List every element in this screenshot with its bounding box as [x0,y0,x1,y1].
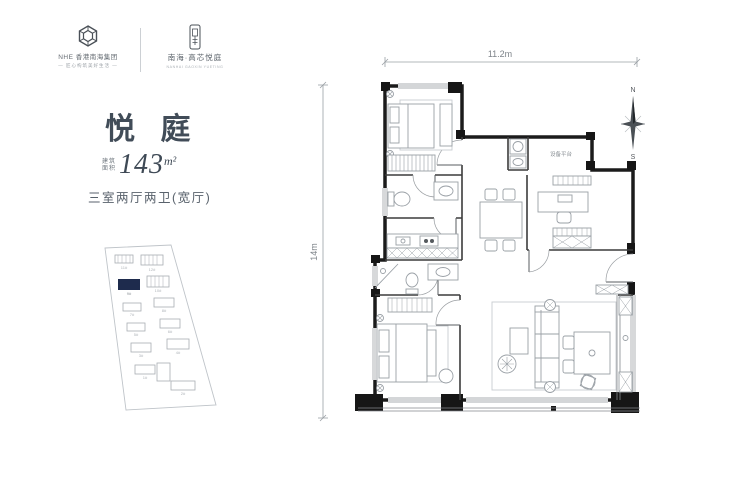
unit-area: 建筑 面积 143 m² [102,152,278,178]
utility-fixtures [510,139,526,168]
svg-text:11.2m: 11.2m [488,49,512,59]
unit-title: 悦 庭 [105,104,278,148]
area-unit: m² [164,154,176,169]
svg-text:10#: 10# [155,288,162,293]
svg-text:6#: 6# [168,329,173,334]
logo-divider [140,28,141,72]
svg-text:7#: 7# [130,312,135,317]
svg-text:11#: 11# [121,265,128,270]
floor-plan: 11.2m 14m N S [300,42,720,452]
equipment-platform-label: 设备平台 [550,150,573,158]
svg-text:12#: 12# [149,267,156,272]
svg-text:3#: 3# [139,353,144,358]
svg-text:S: S [631,154,636,161]
project-logo: 南海·高芯悦庭 NANHAI GAOXIN YUETING [151,24,239,69]
kitchen-fixtures [387,234,458,258]
unit-layout-description: 三室两厅两卫(宽厅) [88,187,278,206]
developer-name: NHE 香港南海集团 [42,51,134,61]
svg-text:9#: 9# [127,291,132,296]
svg-text:4#: 4# [176,350,181,355]
hex-knot-emblem-icon [76,24,100,48]
svg-text:8#: 8# [162,308,167,313]
project-name-en: NANHAI GAOXIN YUETING [151,65,239,69]
developer-tagline: — 匠心构筑美好生活 — [42,63,134,69]
dimension-height: 14m [309,82,328,421]
area-label: 建筑 面积 [102,159,116,173]
svg-text:2#: 2# [181,391,186,396]
svg-text:N: N [630,87,635,94]
project-name: 南海·高芯悦庭 [151,52,239,63]
area-value: 143 [119,152,164,178]
compass-icon: N S [621,87,645,161]
site-plan-keymap: 11# 12# 9# 10# 7# 8# [85,243,235,423]
brand-header: NHE 香港南海集团 — 匠心构筑美好生活 — 南海·高芯悦庭 NANHAI G… [42,24,239,72]
living-room-furniture [492,300,616,393]
seal-emblem-icon [187,24,203,50]
unit-info: 悦 庭 建筑 面积 143 m² 三室两厅两卫(宽厅) [88,104,278,206]
dimension-width: 11.2m [382,49,640,67]
svg-text:1#: 1# [143,375,148,380]
svg-text:14m: 14m [309,243,319,261]
entry-cabinet [596,285,628,294]
developer-logo: NHE 香港南海集团 — 匠心构筑美好生活 — [42,24,134,69]
svg-text:5#: 5# [134,332,139,337]
